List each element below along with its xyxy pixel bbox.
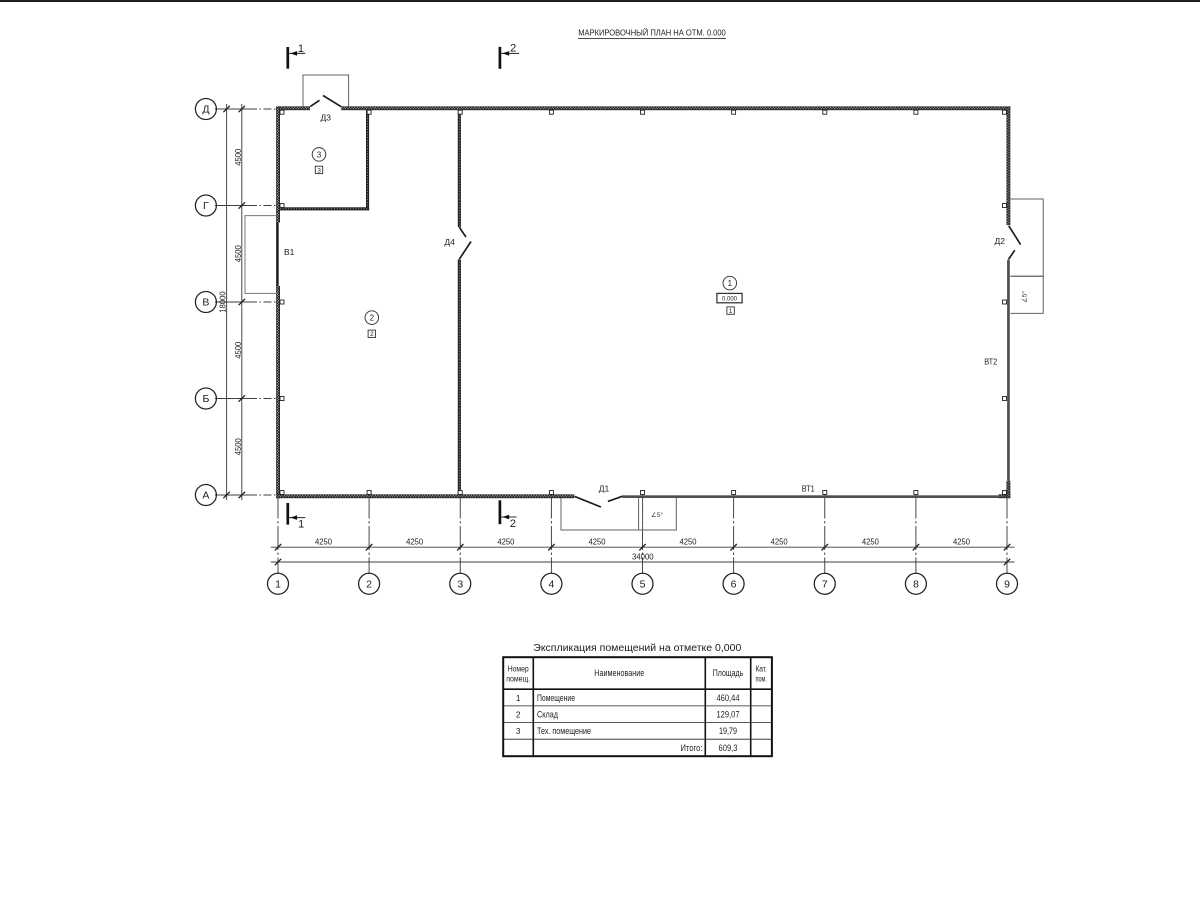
svg-text:ВТ1: ВТ1 [802, 484, 815, 494]
svg-text:34000: 34000 [632, 553, 654, 562]
svg-text:∠5°: ∠5° [1021, 291, 1029, 303]
svg-text:2: 2 [510, 518, 516, 530]
svg-text:МАРКИРОВОЧНЫЙ ПЛАН НА ОТМ. 0.0: МАРКИРОВОЧНЫЙ ПЛАН НА ОТМ. 0.000 [578, 26, 726, 37]
svg-text:4250: 4250 [771, 538, 789, 547]
svg-text:1: 1 [275, 579, 281, 591]
svg-text:4250: 4250 [862, 538, 880, 547]
svg-text:460,44: 460,44 [717, 693, 740, 703]
svg-text:Кат.: Кат. [755, 665, 767, 674]
svg-text:Д2: Д2 [994, 236, 1005, 246]
svg-text:18000: 18000 [219, 291, 228, 313]
svg-text:2: 2 [366, 579, 372, 591]
svg-text:Экспликация помещений на отмет: Экспликация помещений на отметке 0,000 [533, 643, 741, 654]
svg-text:1: 1 [729, 308, 733, 315]
svg-text:2: 2 [510, 43, 516, 55]
svg-text:2: 2 [516, 710, 521, 720]
svg-text:1: 1 [298, 43, 304, 55]
svg-text:19,79: 19,79 [719, 726, 737, 736]
svg-text:3: 3 [457, 579, 463, 591]
svg-text:Тех. помещение: Тех. помещение [537, 726, 591, 736]
svg-text:4250: 4250 [497, 538, 515, 547]
svg-text:3: 3 [516, 726, 521, 736]
svg-text:4: 4 [548, 579, 554, 591]
svg-text:В1: В1 [284, 247, 295, 257]
svg-text:4500: 4500 [234, 438, 243, 456]
svg-text:2: 2 [370, 331, 374, 338]
svg-text:1: 1 [728, 279, 733, 288]
svg-text:1: 1 [298, 518, 304, 530]
svg-text:помещ.: помещ. [506, 675, 530, 684]
svg-text:4500: 4500 [234, 341, 243, 359]
svg-text:В: В [202, 297, 209, 309]
svg-text:Д: Д [202, 104, 209, 116]
svg-text:пом.: пом. [755, 675, 767, 684]
svg-text:Площадь: Площадь [713, 668, 744, 678]
svg-text:4250: 4250 [953, 538, 971, 547]
svg-text:3: 3 [317, 167, 321, 174]
svg-text:4500: 4500 [234, 245, 243, 263]
svg-text:5: 5 [640, 579, 646, 591]
svg-text:∠5°: ∠5° [651, 511, 663, 519]
svg-text:6: 6 [731, 579, 737, 591]
svg-text:Д1: Д1 [599, 484, 610, 494]
svg-text:2: 2 [370, 314, 375, 323]
svg-text:Д4: Д4 [444, 237, 455, 247]
svg-text:4250: 4250 [588, 538, 606, 547]
svg-text:ВТ2: ВТ2 [984, 356, 997, 366]
svg-text:4250: 4250 [406, 538, 424, 547]
svg-text:А: А [202, 490, 209, 502]
svg-text:Д3: Д3 [321, 112, 332, 122]
svg-text:Б: Б [202, 393, 209, 405]
svg-text:Склад: Склад [537, 710, 558, 720]
svg-text:129,07: 129,07 [717, 710, 740, 720]
svg-text:8: 8 [913, 579, 919, 591]
svg-text:0.000: 0.000 [722, 296, 737, 303]
svg-text:Помещение: Помещение [537, 693, 575, 703]
svg-text:609,3: 609,3 [719, 743, 738, 753]
svg-text:7: 7 [822, 579, 828, 591]
svg-text:Номер: Номер [508, 665, 529, 674]
svg-text:1: 1 [516, 693, 521, 703]
svg-text:4250: 4250 [315, 538, 333, 547]
svg-text:4500: 4500 [234, 148, 243, 166]
svg-text:Итого:: Итого: [681, 743, 703, 753]
svg-text:3: 3 [317, 150, 322, 159]
svg-text:9: 9 [1004, 579, 1010, 591]
svg-text:Наименование: Наименование [594, 668, 644, 678]
svg-text:Г: Г [203, 200, 209, 212]
svg-text:4250: 4250 [680, 538, 698, 547]
